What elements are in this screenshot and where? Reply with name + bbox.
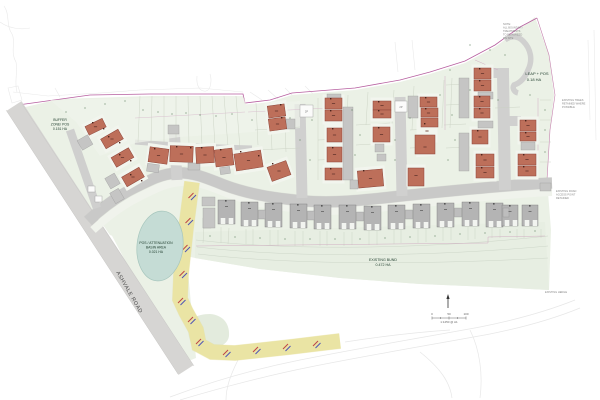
svg-text:EXISTING HEDGE: EXISTING HEDGE	[545, 290, 567, 294]
svg-text:TREATMENTS: TREATMENTS	[503, 29, 521, 33]
svg-text:ACCESS POINT: ACCESS POINT	[556, 193, 576, 197]
svg-text:2P: 2P	[305, 110, 308, 114]
svg-text:2P: 2P	[399, 105, 402, 109]
svg-text:BASIN AREA: BASIN AREA	[146, 246, 167, 250]
svg-text:0.472 HA: 0.472 HA	[376, 263, 392, 267]
svg-text:ALL BOUNDARY: ALL BOUNDARY	[503, 26, 523, 30]
svg-text:ON SITE: ON SITE	[503, 36, 514, 40]
svg-text:NOTE:: NOTE:	[503, 22, 511, 26]
svg-text:RETAINED WHERE: RETAINED WHERE	[562, 102, 586, 106]
svg-text:EXISTING BUND: EXISTING BUND	[369, 258, 397, 262]
svg-text:POSSIBLE: POSSIBLE	[562, 105, 575, 109]
svg-text:0.18 HA: 0.18 HA	[527, 77, 542, 82]
svg-text:50: 50	[447, 312, 451, 316]
svg-text:POS / ATTENUATION: POS / ATTENUATION	[139, 241, 173, 245]
svg-text:TO BE AGREED: TO BE AGREED	[503, 33, 522, 37]
svg-text:EXISTING TREES: EXISTING TREES	[562, 98, 584, 102]
svg-text:ZONE/ POS: ZONE/ POS	[51, 123, 70, 127]
svg-text:100: 100	[463, 312, 468, 316]
svg-text:0.021 HA: 0.021 HA	[149, 250, 164, 254]
svg-text:LEAP + POS: LEAP + POS	[525, 71, 548, 76]
svg-text:1:1250 @ A1: 1:1250 @ A1	[440, 320, 458, 324]
svg-text:RETAINED: RETAINED	[556, 196, 569, 200]
svg-text:0.151 HA: 0.151 HA	[53, 127, 68, 131]
svg-text:EXISTING ROAD: EXISTING ROAD	[556, 189, 576, 193]
svg-text:BUFFER: BUFFER	[53, 118, 67, 122]
